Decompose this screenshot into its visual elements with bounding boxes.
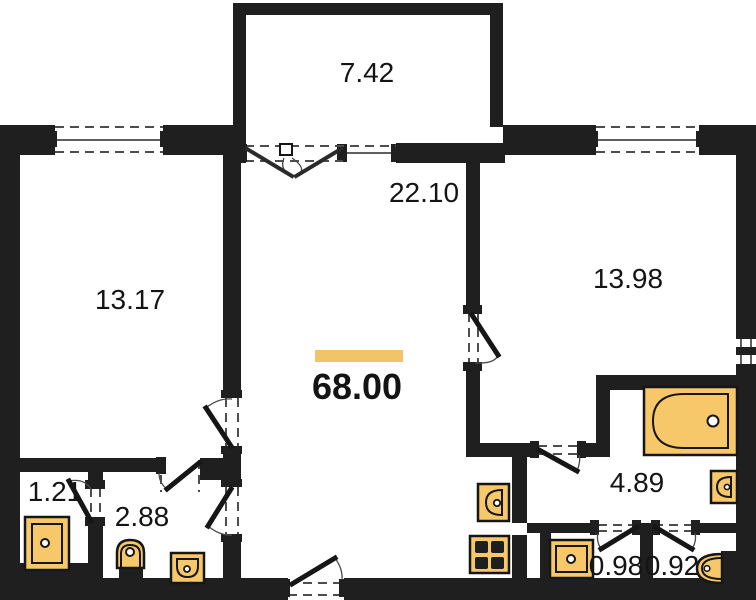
stove-icon bbox=[470, 536, 509, 573]
door-bathroom bbox=[530, 441, 586, 471]
door-wc-right bbox=[651, 520, 700, 549]
wall-top-left-a bbox=[0, 125, 55, 155]
room-label-bedroom-right: 13.98 bbox=[593, 263, 663, 294]
room-label-wc-left: 0.98 bbox=[589, 550, 644, 581]
wc-toilet-icon bbox=[697, 551, 738, 583]
door-bedroom-left bbox=[206, 390, 242, 454]
shower-tray-icon bbox=[25, 517, 69, 570]
toilet-icon bbox=[117, 540, 144, 583]
wall-under-balcony bbox=[396, 143, 505, 163]
door-wc-left bbox=[590, 520, 641, 549]
floor-plan: 68.00 7.42 22.10 13.17 13.98 1.21 2.88 4… bbox=[0, 0, 756, 600]
wall-bedroom-divider-top bbox=[466, 155, 480, 313]
wall-exterior-right-upper bbox=[736, 155, 756, 337]
door-toilet-room-from-living bbox=[208, 479, 242, 542]
room-label-toilet-room: 2.88 bbox=[115, 501, 170, 532]
wall-bedroomleft-bottom bbox=[20, 458, 160, 472]
door-entry bbox=[281, 558, 348, 597]
wall-exterior-bottom-right bbox=[344, 578, 756, 600]
wall-exterior-right-lower bbox=[736, 367, 756, 578]
window-top-right bbox=[588, 127, 706, 152]
room-label-closet: 1.21 bbox=[28, 476, 83, 507]
wall-wc-north-right bbox=[696, 523, 736, 533]
wall-exterior-bottom-left bbox=[0, 578, 288, 600]
room-label-bathroom-hall: 4.89 bbox=[610, 467, 665, 498]
window-left bbox=[47, 127, 170, 152]
wall-balcony-right bbox=[490, 3, 503, 127]
wall-central-stub bbox=[200, 458, 223, 480]
room-label-living-room: 22.10 bbox=[389, 177, 459, 208]
wall-balcony-top bbox=[233, 3, 503, 15]
wall-kitchen-divider-top bbox=[512, 457, 527, 523]
bathtub-icon bbox=[644, 387, 737, 455]
total-area-accent-bar bbox=[315, 350, 403, 362]
wall-bath-west bbox=[596, 388, 610, 457]
total-area-label: 68.00 bbox=[312, 366, 402, 407]
wall-exterior-left bbox=[0, 125, 20, 600]
door-bedroom-right bbox=[463, 305, 498, 371]
bathroom-basin-icon bbox=[711, 471, 737, 503]
wall-central-upper bbox=[223, 125, 241, 390]
wall-bedroom-divider-bottom bbox=[466, 363, 480, 457]
wall-wc-north-left bbox=[527, 523, 597, 533]
wc-shower-tray-icon bbox=[550, 540, 593, 578]
door-toilet-room-from-bedroom bbox=[156, 457, 199, 492]
window-right-wall bbox=[736, 333, 756, 370]
kitchen-sink-icon bbox=[478, 484, 509, 521]
wall-top-right-a bbox=[503, 125, 596, 155]
floor-plan-canvas: 68.00 7.42 22.10 13.17 13.98 1.21 2.88 4… bbox=[0, 0, 756, 600]
wall-closet-divider-bottom bbox=[88, 518, 103, 578]
room-label-wc-right: 0.92 bbox=[645, 550, 700, 581]
room-label-balcony: 7.42 bbox=[340, 57, 395, 88]
wall-top-right-b bbox=[699, 125, 756, 155]
room-label-bedroom-left: 13.17 bbox=[95, 284, 165, 315]
wall-kitchen-divider-bottom bbox=[512, 535, 527, 578]
windows bbox=[47, 127, 756, 370]
wash-basin-icon bbox=[171, 553, 204, 583]
wall-bath-north-left bbox=[466, 443, 538, 457]
labels: 68.00 7.42 22.10 13.17 13.98 1.21 2.88 4… bbox=[28, 57, 700, 581]
french-door-handle bbox=[280, 144, 292, 155]
balcony-french-door bbox=[238, 144, 396, 176]
